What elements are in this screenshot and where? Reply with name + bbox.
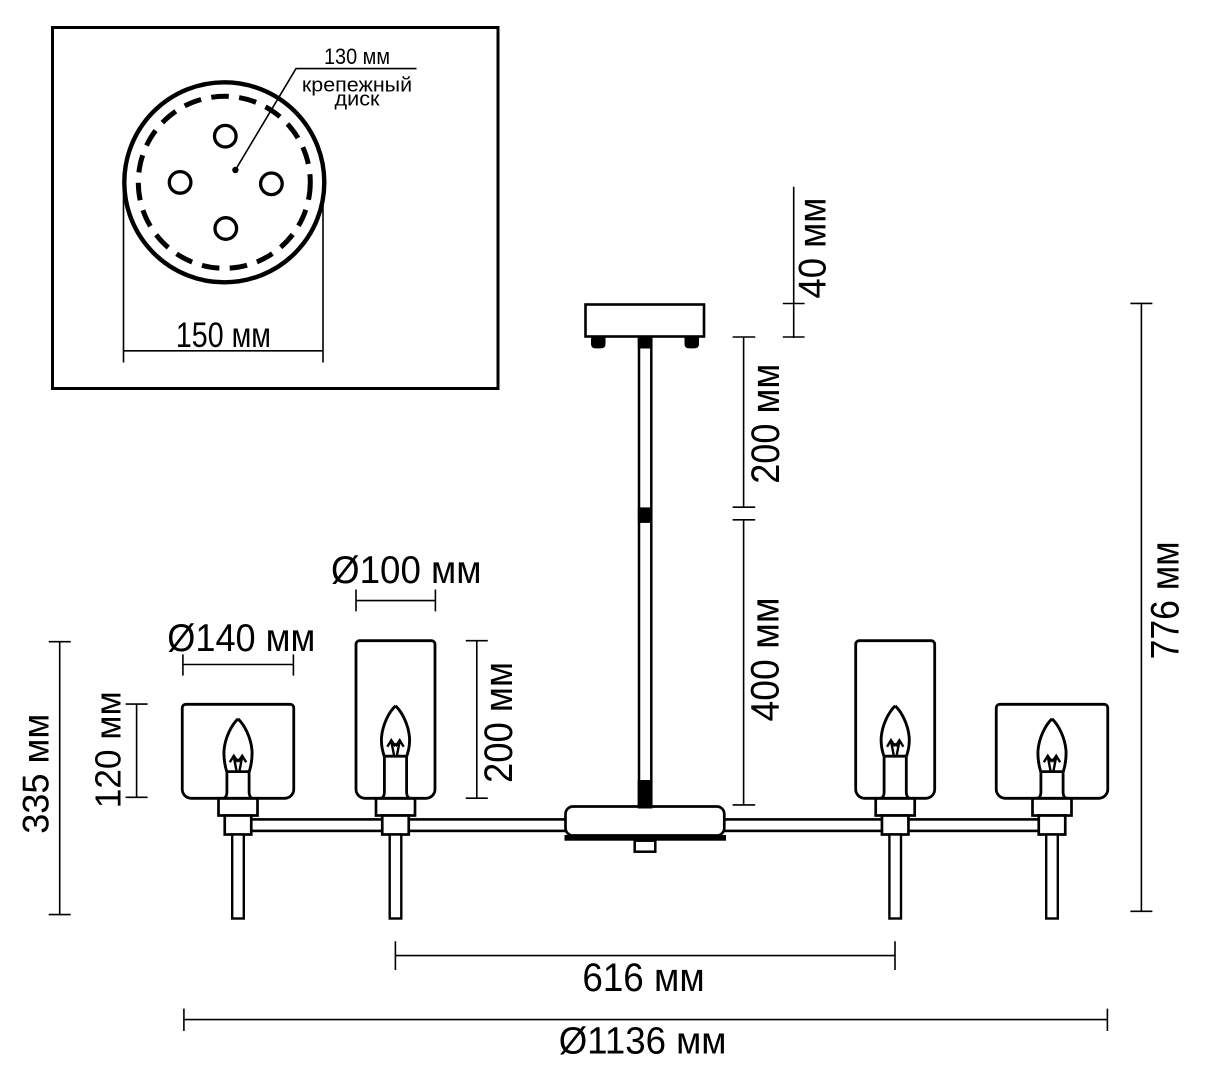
svg-text:диск: диск bbox=[335, 89, 381, 111]
svg-text:130 мм: 130 мм bbox=[324, 44, 390, 69]
svg-text:616 мм: 616 мм bbox=[582, 955, 704, 1000]
svg-text:335 мм: 335 мм bbox=[15, 714, 57, 834]
svg-text:776 мм: 776 мм bbox=[1144, 541, 1188, 659]
svg-text:Ø1136 мм: Ø1136 мм bbox=[559, 1021, 727, 1063]
svg-text:200 мм: 200 мм bbox=[744, 364, 788, 484]
svg-text:400 мм: 400 мм bbox=[744, 598, 788, 722]
svg-text:120 мм: 120 мм bbox=[88, 691, 129, 808]
svg-text:200 мм: 200 мм bbox=[477, 662, 521, 783]
svg-text:Ø100 мм: Ø100 мм bbox=[331, 549, 482, 592]
svg-text:Ø140 мм: Ø140 мм bbox=[167, 617, 315, 660]
svg-text:150 мм: 150 мм bbox=[176, 315, 271, 355]
svg-text:40 мм: 40 мм bbox=[792, 198, 835, 299]
